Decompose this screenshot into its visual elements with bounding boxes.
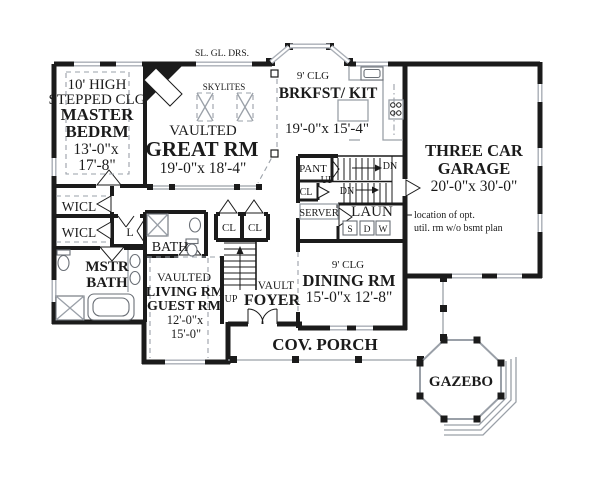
foyer-cl1-label: CL [222,222,236,234]
living-dim-label-2: 15'-0" [171,327,201,341]
wicl2-label: WICL [62,225,97,240]
linen-label: L [126,225,133,239]
brkfst-dims-label: 19'-0"x 15'-4" [285,121,369,137]
foyer-vault-label: VAULT [258,280,294,292]
laundry-label: LAUN [351,204,393,220]
washer-box-label: W [379,225,388,235]
living-name-label-1: LIVING RM [146,285,224,300]
porch-label: COV. PORCH [272,335,377,354]
option-note-line-2: util. rm w/o bsmt plan [414,223,503,234]
great-dims-label: 19'-0"x 18'-4" [160,160,247,177]
brkfst-ceiling-label: 9' CLG [297,70,329,82]
floor-plan-drawing: SL. GL. DRS. 10' HIGH STEPPED CLG MASTER… [0,0,600,480]
dining-ceiling-label: 9' CLG [332,259,364,271]
stair-dn-lower-label: DN [340,186,354,197]
server-label: SERVER [299,208,338,219]
dryer-box-label: D [364,225,371,235]
room-living-guest: VAULTED LIVING RM GUEST RM 12'-0"x 15'-0… [146,270,224,341]
foyer-labels: CL CL UP VAULT FOYER [222,222,300,309]
foyer-cl2-label: CL [248,222,262,234]
mstr-bath-label-1: MSTR [85,259,129,275]
mstr-bath-label-2: BATH [86,275,128,291]
dining-dims-label: 15'-0"x 12'-8" [306,289,393,306]
room-garage: THREE CAR GARAGE 20'-0"x 30'-0" [425,141,524,195]
master-dim-label-1: 13'-0"x [73,141,119,158]
foyer-up-label: UP [225,294,238,305]
gazebo-label: GAZEBO [429,374,493,390]
garage-name-label-1: THREE CAR [425,141,524,160]
sink-box-label: S [347,225,352,235]
garage-dims-label: 20'-0"x 30'-0" [431,178,518,195]
living-vaulted-label: VAULTED [157,270,211,284]
fireplace [144,62,186,106]
foyer-stairs [224,241,256,290]
great-name-label: GREAT RM [146,137,259,161]
master-ceiling-label-1: 10' HIGH [68,77,127,93]
stair-closet-label: CL [300,187,313,198]
floor-plan-page: SL. GL. DRS. 10' HIGH STEPPED CLG MASTER… [0,0,600,480]
brkfst-name-label: BRKFST/ KIT [279,85,378,102]
sliding-doors-label: SL. GL. DRS. [195,49,249,59]
skylights-label: SKYLITES [203,82,246,92]
option-note-line-1: location of opt. [414,210,475,221]
master-dim-label-2: 17'-8" [78,157,116,174]
living-name-label-2: GUEST RM [147,299,221,314]
stair-dn-upper-label: DN [383,161,397,172]
garage-name-label-2: GARAGE [438,159,510,178]
skylight-symbols [197,93,253,121]
living-dim-label-1: 12'-0"x [167,313,204,327]
room-dining: 9' CLG DINING RM 15'-0"x 12'-8" [302,259,395,306]
wicl1-label: WICL [62,199,97,214]
stair-up-label: UP [321,175,334,186]
room-master-bedroom: 10' HIGH STEPPED CLG MASTER BEDRM 13'-0"… [48,77,145,174]
pantry-label: PANT [299,163,327,175]
dining-name-label: DINING RM [302,271,395,290]
hall-bath-label: BATH [152,240,189,255]
master-name-label-2: BEDRM [65,122,128,141]
foyer-name-label: FOYER [244,292,300,309]
